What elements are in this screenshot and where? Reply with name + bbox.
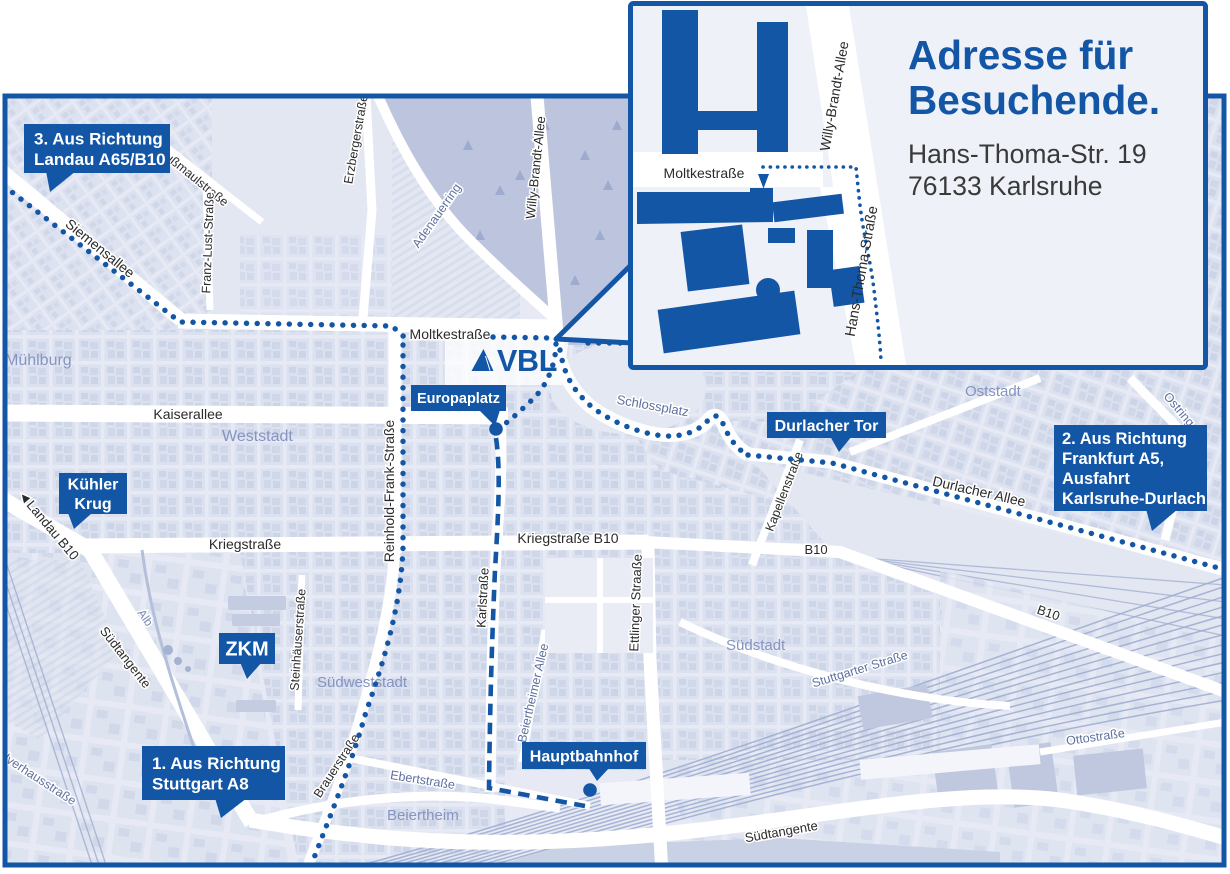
svg-text:Kriegstraße: Kriegstraße: [209, 536, 282, 552]
svg-text:Mühlburg: Mühlburg: [5, 352, 72, 369]
svg-text:Stuttgart A8: Stuttgart A8: [152, 774, 249, 793]
svg-text:Beiertheim: Beiertheim: [387, 807, 459, 824]
svg-text:1. Aus Richtung: 1. Aus Richtung: [152, 754, 281, 773]
svg-text:Karlstraße: Karlstraße: [473, 567, 491, 628]
svg-text:2. Aus Richtung: 2. Aus Richtung: [1062, 430, 1187, 448]
svg-text:Kühler: Kühler: [68, 477, 119, 494]
svg-text:Reinhold-Frank-Straße: Reinhold-Frank-Straße: [381, 420, 397, 563]
svg-text:VBL: VBL: [497, 344, 557, 378]
svg-text:Moltkestraße: Moltkestraße: [410, 326, 491, 342]
svg-text:Frankfurt A5,: Frankfurt A5,: [1062, 450, 1164, 468]
svg-text:3. Aus Richtung: 3. Aus Richtung: [34, 129, 163, 148]
svg-text:Oststadt: Oststadt: [965, 383, 1022, 400]
svg-text:Krug: Krug: [74, 496, 111, 513]
svg-text:Weststadt: Weststadt: [222, 428, 293, 445]
svg-text:B10: B10: [804, 542, 827, 557]
svg-text:Ausfahrt: Ausfahrt: [1062, 470, 1130, 488]
svg-text:Adresse für: Adresse für: [908, 32, 1133, 78]
svg-text:Südweststadt: Südweststadt: [317, 674, 408, 691]
svg-text:Kaiserallee: Kaiserallee: [153, 406, 222, 422]
svg-text:Hans-Thoma-Str. 19: Hans-Thoma-Str. 19: [908, 139, 1147, 169]
svg-text:Kriegstraße B10: Kriegstraße B10: [517, 530, 618, 546]
svg-text:Moltkestraße: Moltkestraße: [664, 165, 745, 181]
svg-text:Hauptbahnhof: Hauptbahnhof: [530, 748, 639, 765]
svg-text:76133 Karlsruhe: 76133 Karlsruhe: [908, 171, 1102, 201]
svg-text:Durlacher Tor: Durlacher Tor: [775, 418, 879, 435]
svg-text:Landau A65/B10: Landau A65/B10: [34, 150, 166, 169]
svg-text:Besuchende.: Besuchende.: [908, 77, 1160, 123]
svg-text:Karlsruhe-Durlach: Karlsruhe-Durlach: [1062, 490, 1206, 508]
svg-text:ZKM: ZKM: [225, 639, 268, 661]
svg-text:Südstadt: Südstadt: [726, 637, 786, 654]
svg-text:Europaplatz: Europaplatz: [417, 391, 500, 407]
